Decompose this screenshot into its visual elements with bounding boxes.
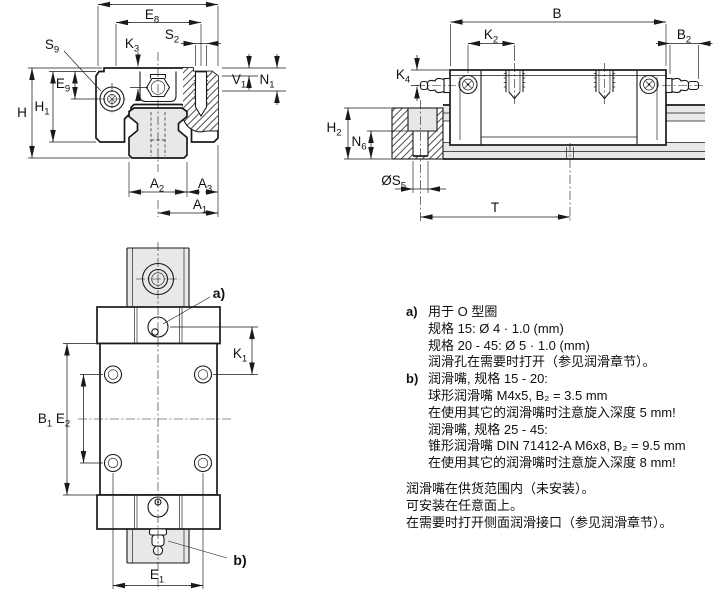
note-line: 在需要时打开侧面润滑接口（参见润滑章节）。	[406, 515, 712, 532]
side-base-section	[392, 100, 443, 221]
dim-label-k4: K4	[396, 67, 410, 86]
dim-label-h: H	[17, 105, 27, 120]
dim-s5: ØS5	[381, 161, 446, 193]
dim-label-k1: K1	[233, 346, 247, 365]
dim-label-n6: N6	[351, 134, 366, 153]
dim-label-k3: K3	[125, 36, 139, 55]
dim-label-e2: E2	[56, 411, 70, 430]
notes-footer: 润滑嘴在供货范围内（未安装）。 可安装在任意面上。 在需要时打开侧面润滑接口（参…	[406, 481, 712, 531]
callout-a-label: a)	[213, 285, 225, 301]
dim-label-t: T	[491, 200, 499, 215]
side-view: B K2 B2 K4	[326, 6, 712, 221]
note-line: 规格 15: Ø 4 · 1.0 (mm)	[428, 321, 712, 338]
dim-label-b1: B1	[38, 411, 52, 430]
dim-label-b: B	[552, 6, 561, 21]
note-line: 可安装在任意面上。	[406, 498, 712, 515]
note-line: 润滑嘴在供货范围内（未安装）。	[406, 481, 712, 498]
note-line: b) 润滑嘴, 规格 15 - 20:	[406, 371, 712, 388]
dim-v1: V1	[222, 54, 286, 91]
side-carriage	[416, 63, 703, 145]
dim-label-s5: ØS5	[381, 173, 406, 192]
note-text: 用于 O 型圈	[428, 304, 497, 321]
technical-drawing-page: E8 S2 S9 K3	[0, 0, 720, 590]
note-line: 在使用其它的润滑嘴时注意旋入深度 8 mm!	[428, 455, 712, 472]
note-b-label: b)	[406, 371, 428, 388]
callout-b-label: b)	[233, 552, 246, 568]
note-text: 润滑嘴, 规格 15 - 20:	[428, 371, 548, 388]
note-line: 规格 20 - 45: Ø 5 · 1.0 (mm)	[428, 338, 712, 355]
dim-n1: N1	[259, 54, 277, 105]
dim-label-s2: S2	[165, 27, 179, 46]
dim-label-v1: V1	[232, 72, 246, 91]
dim-label-s9: S9	[45, 37, 59, 56]
front-view: E8 S2 S9 K3	[17, 5, 286, 218]
dim-label-h2: H2	[326, 120, 341, 139]
dim-label-h1: H1	[34, 99, 49, 118]
note-line: 在使用其它的润滑嘴时注意旋入深度 5 mm!	[428, 405, 712, 422]
dim-h1: H1	[34, 72, 96, 143]
dim-e9: E9	[56, 72, 98, 100]
dim-k4: K4	[396, 55, 449, 101]
note-line: a) 用于 O 型圈	[406, 304, 712, 321]
note-line: 润滑孔在需要时打开（参见润滑章节）。	[428, 354, 712, 371]
grease-nipple-right-icon	[662, 78, 703, 92]
dim-b: B	[451, 6, 667, 66]
note-line: 润滑嘴, 规格 25 - 45:	[428, 422, 712, 439]
note-line: 球形润滑嘴 M4x5, B₂ = 3.5 mm	[428, 388, 712, 405]
dim-s2: S2	[165, 27, 221, 66]
dim-k2: K2	[468, 27, 515, 73]
notes-block: a) 用于 O 型圈 规格 15: Ø 4 · 1.0 (mm) 规格 20 -…	[406, 304, 712, 531]
dim-label-b2: B2	[677, 27, 691, 46]
note-a-label: a)	[406, 304, 428, 321]
plan-view: a) b) K1 B1	[38, 242, 258, 590]
note-line: 锥形润滑嘴 DIN 71412-A M6x8, B₂ = 9.5 mm	[428, 438, 712, 455]
dim-label-n1: N1	[259, 72, 274, 91]
dim-label-e9: E9	[56, 76, 70, 95]
dim-label-e1: E1	[150, 567, 164, 586]
grease-nipple-left-icon	[416, 78, 456, 92]
dim-label-k2: K2	[484, 27, 498, 46]
dim-a1: A1	[158, 197, 218, 217]
